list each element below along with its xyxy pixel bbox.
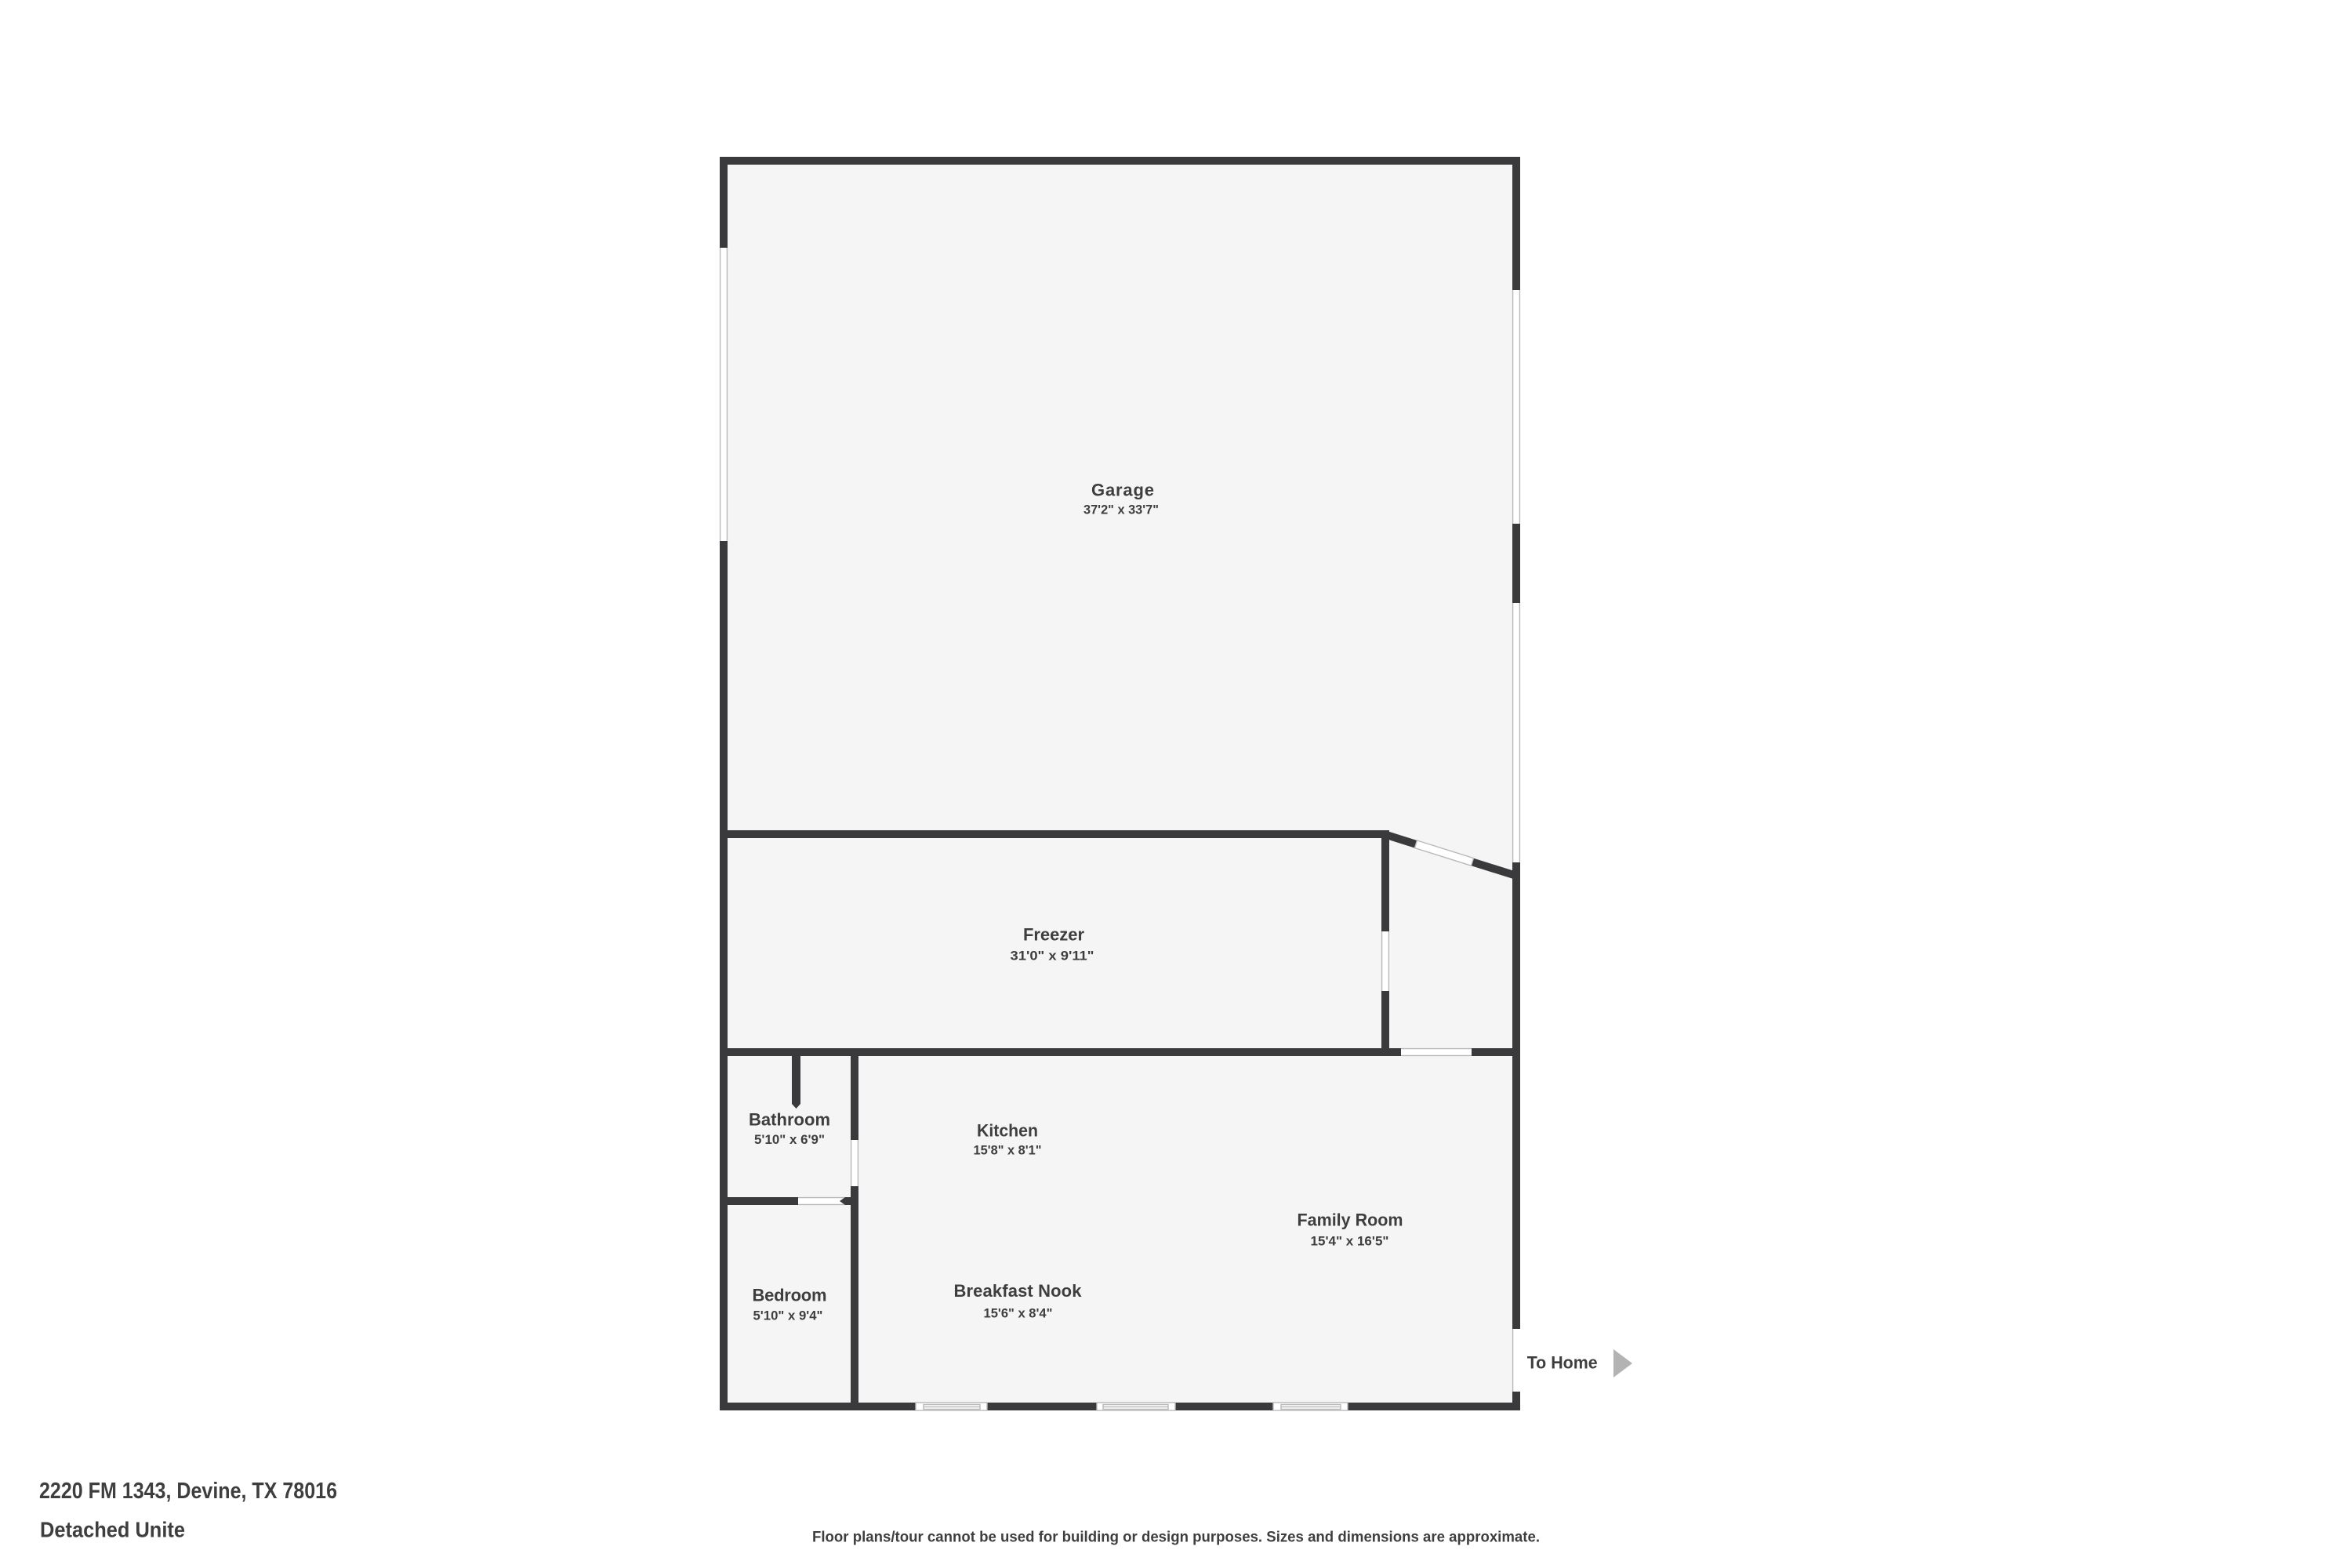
svg-text:Kitchen: Kitchen [977,1121,1038,1141]
svg-text:2220 FM 1343, Devine, TX 78016: 2220 FM 1343, Devine, TX 78016 [39,1479,337,1504]
svg-text:5'10" x 6'9": 5'10" x 6'9" [754,1132,825,1147]
svg-text:Garage: Garage [1091,481,1154,500]
svg-text:Detached Unite: Detached Unite [40,1518,185,1542]
svg-text:15'8" x 8'1": 15'8" x 8'1" [974,1143,1042,1158]
svg-text:Floor plans/tour cannot be use: Floor plans/tour cannot be used for buil… [812,1529,1540,1546]
svg-text:5'10" x 9'4": 5'10" x 9'4" [753,1308,823,1323]
svg-text:37'2" x 33'7": 37'2" x 33'7" [1083,503,1159,517]
svg-text:Family Room: Family Room [1298,1210,1403,1230]
svg-text:15'4" x 16'5": 15'4" x 16'5" [1311,1234,1389,1249]
svg-text:Bathroom: Bathroom [749,1110,830,1130]
svg-text:31'0" x 9'11": 31'0" x 9'11" [1011,949,1094,964]
svg-text:Breakfast Nook: Breakfast Nook [954,1281,1083,1301]
svg-text:Freezer: Freezer [1023,925,1084,945]
svg-text:To Home: To Home [1527,1353,1598,1373]
svg-text:Bedroom: Bedroom [753,1286,827,1305]
svg-text:15'6" x 8'4": 15'6" x 8'4" [984,1306,1053,1321]
